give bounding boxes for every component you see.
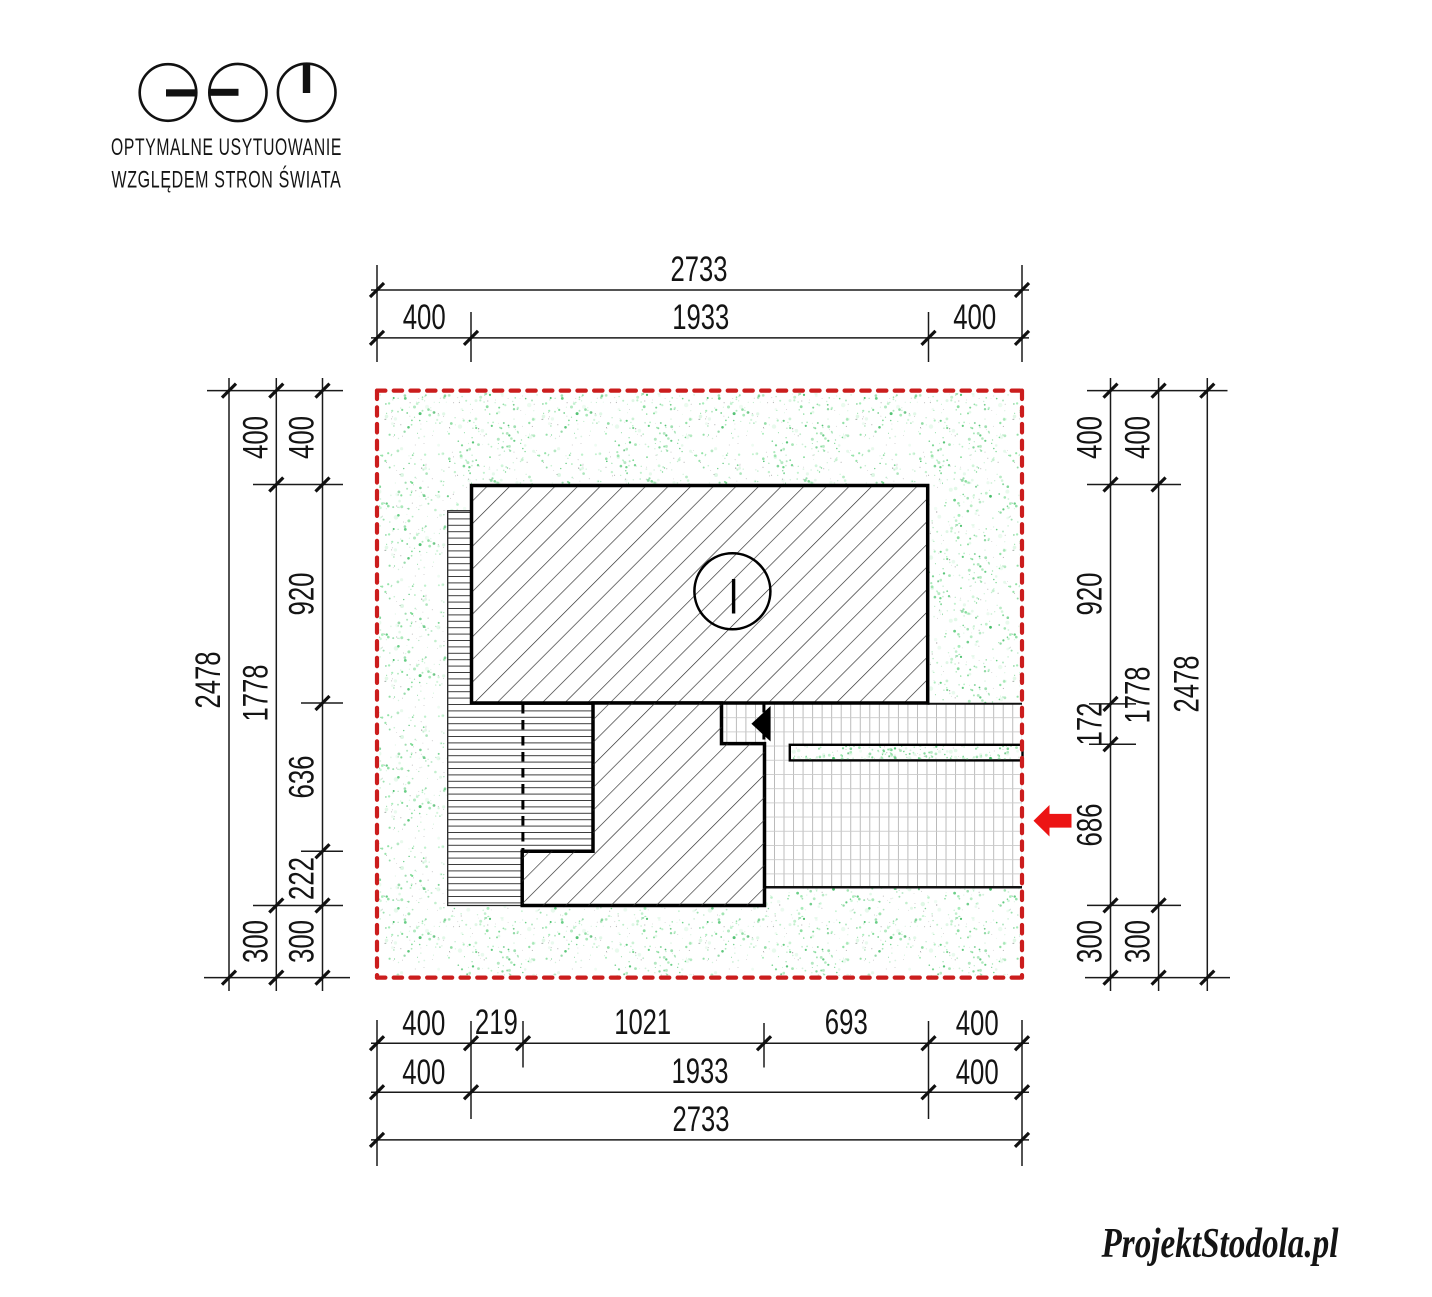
svg-text:400: 400 bbox=[402, 1003, 445, 1043]
svg-text:400: 400 bbox=[282, 416, 322, 459]
svg-text:400: 400 bbox=[1070, 416, 1110, 459]
svg-text:222: 222 bbox=[282, 857, 322, 900]
svg-text:1778: 1778 bbox=[235, 665, 275, 722]
svg-text:172: 172 bbox=[1070, 703, 1110, 746]
svg-text:300: 300 bbox=[1070, 920, 1110, 963]
svg-text:400: 400 bbox=[235, 416, 275, 459]
svg-text:920: 920 bbox=[1070, 573, 1110, 616]
svg-text:400: 400 bbox=[956, 1003, 999, 1043]
svg-text:400: 400 bbox=[403, 297, 446, 337]
svg-text:300: 300 bbox=[1118, 920, 1158, 963]
svg-text:400: 400 bbox=[953, 297, 996, 337]
svg-text:400: 400 bbox=[402, 1052, 445, 1092]
svg-text:ProjektStodola.pl: ProjektStodola.pl bbox=[1101, 1221, 1339, 1267]
svg-text:1021: 1021 bbox=[614, 1002, 671, 1042]
svg-text:2478: 2478 bbox=[188, 652, 228, 709]
svg-text:920: 920 bbox=[282, 573, 322, 616]
svg-text:1933: 1933 bbox=[672, 297, 729, 337]
svg-text:400: 400 bbox=[956, 1052, 999, 1092]
svg-text:2478: 2478 bbox=[1166, 656, 1206, 713]
svg-text:1933: 1933 bbox=[672, 1051, 729, 1091]
svg-text:636: 636 bbox=[282, 756, 322, 799]
svg-text:OPTYMALNE USYTUOWANIE: OPTYMALNE USYTUOWANIE bbox=[111, 134, 342, 161]
svg-text:1778: 1778 bbox=[1118, 667, 1158, 724]
svg-text:686: 686 bbox=[1070, 804, 1110, 847]
svg-text:693: 693 bbox=[825, 1002, 868, 1042]
svg-text:2733: 2733 bbox=[673, 1099, 730, 1139]
svg-text:219: 219 bbox=[475, 1002, 518, 1042]
svg-text:300: 300 bbox=[282, 920, 322, 963]
svg-text:300: 300 bbox=[235, 920, 275, 963]
svg-text:2733: 2733 bbox=[671, 249, 728, 289]
svg-text:400: 400 bbox=[1118, 416, 1158, 459]
svg-text:WZGLĘDEM STRON ŚWIATA: WZGLĘDEM STRON ŚWIATA bbox=[112, 166, 342, 194]
